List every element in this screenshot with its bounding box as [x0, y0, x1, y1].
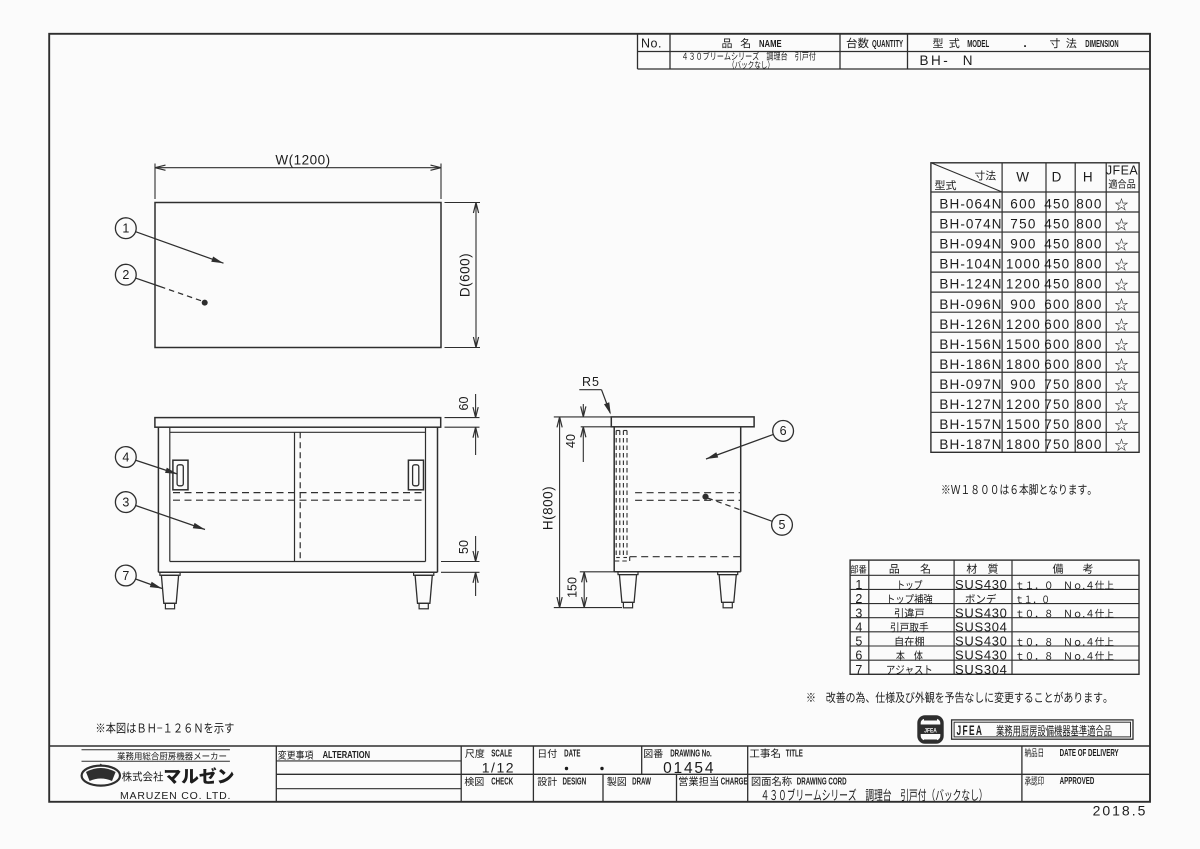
svg-text:40: 40 — [564, 434, 578, 448]
svg-text:5: 5 — [855, 635, 862, 649]
svg-text:D(600): D(600) — [458, 253, 473, 297]
svg-text:450: 450 — [1044, 217, 1070, 232]
svg-text:H: H — [1083, 170, 1093, 185]
svg-text:450: 450 — [1044, 237, 1070, 252]
svg-text:BH-156N: BH-156N — [939, 337, 1002, 352]
svg-text:JFEA: JFEA — [924, 728, 937, 735]
svg-text:1200: 1200 — [1006, 317, 1041, 332]
svg-text:600: 600 — [1044, 337, 1070, 352]
svg-text:SUS430: SUS430 — [955, 577, 1008, 592]
svg-text:BH-064N: BH-064N — [939, 197, 1002, 212]
svg-text:600: 600 — [1044, 317, 1070, 332]
svg-text:DATE: DATE — [564, 747, 581, 759]
svg-text:450: 450 — [1044, 277, 1070, 292]
svg-text:800: 800 — [1076, 297, 1102, 312]
svg-text:BH-104N: BH-104N — [939, 257, 1002, 272]
svg-text:H(800): H(800) — [541, 486, 556, 530]
svg-text:7: 7 — [855, 663, 862, 677]
svg-text:1500: 1500 — [1006, 417, 1041, 432]
svg-text:5: 5 — [779, 518, 786, 532]
svg-text:N: N — [963, 53, 973, 68]
svg-text:D: D — [1052, 170, 1062, 185]
svg-text:BH-186N: BH-186N — [939, 357, 1002, 372]
svg-text:800: 800 — [1076, 237, 1102, 252]
svg-text:BH-187N: BH-187N — [939, 437, 1002, 452]
svg-text:1: 1 — [855, 578, 862, 592]
svg-text:BH-096N: BH-096N — [939, 297, 1002, 312]
svg-text:6: 6 — [855, 649, 862, 663]
svg-text:800: 800 — [1076, 337, 1102, 352]
svg-text:60: 60 — [457, 397, 471, 411]
svg-text:4: 4 — [855, 620, 862, 634]
svg-text:DRAWING CORD: DRAWING CORD — [797, 775, 847, 787]
svg-text:600: 600 — [1044, 357, 1070, 372]
svg-text:3: 3 — [122, 495, 129, 509]
svg-text:R5: R5 — [582, 375, 600, 389]
svg-text:1/12: 1/12 — [482, 760, 515, 776]
svg-text:800: 800 — [1076, 317, 1102, 332]
svg-text:7: 7 — [122, 569, 129, 583]
svg-text:DRAW: DRAW — [632, 775, 651, 787]
svg-text:SUS430: SUS430 — [955, 605, 1008, 620]
svg-text:750: 750 — [1044, 397, 1070, 412]
svg-text:600: 600 — [1044, 297, 1070, 312]
svg-text:800: 800 — [1076, 277, 1102, 292]
svg-text:BH-157N: BH-157N — [939, 417, 1002, 432]
svg-text:2: 2 — [855, 592, 862, 606]
svg-text:50: 50 — [457, 540, 471, 554]
svg-text:TITLE: TITLE — [786, 747, 804, 759]
svg-text:800: 800 — [1076, 417, 1102, 432]
svg-text:450: 450 — [1044, 257, 1070, 272]
svg-text:JFEA: JFEA — [1106, 164, 1138, 178]
svg-text:APPROVED: APPROVED — [1060, 774, 1095, 786]
svg-text:900: 900 — [1010, 377, 1036, 392]
svg-text:2018.5: 2018.5 — [1093, 802, 1148, 818]
svg-text:6: 6 — [780, 424, 787, 438]
svg-text:SUS430: SUS430 — [955, 634, 1008, 649]
svg-text:1: 1 — [122, 222, 129, 236]
svg-text:750: 750 — [1010, 217, 1036, 232]
svg-text:ALTERATION: ALTERATION — [323, 749, 370, 760]
svg-text:BH-: BH- — [920, 53, 951, 68]
svg-text:.: . — [1023, 36, 1026, 50]
svg-text:QUANTITY: QUANTITY — [872, 37, 903, 49]
svg-text:MODEL: MODEL — [967, 37, 989, 49]
svg-text:BH-127N: BH-127N — [939, 397, 1002, 412]
svg-text:1200: 1200 — [1006, 277, 1041, 292]
svg-text:SUS304: SUS304 — [955, 619, 1008, 634]
svg-text:CHARGE: CHARGE — [721, 775, 748, 787]
svg-text:CHECK: CHECK — [491, 775, 513, 787]
svg-text:800: 800 — [1076, 357, 1102, 372]
svg-text:1200: 1200 — [1006, 397, 1041, 412]
svg-text:1800: 1800 — [1006, 437, 1041, 452]
svg-text:800: 800 — [1076, 437, 1102, 452]
svg-text:No.: No. — [641, 37, 662, 51]
svg-text:750: 750 — [1044, 377, 1070, 392]
svg-text:01454: 01454 — [663, 760, 715, 777]
svg-text:BH-097N: BH-097N — [939, 377, 1002, 392]
svg-text:NAME: NAME — [759, 38, 782, 49]
svg-text:150: 150 — [566, 577, 580, 598]
svg-text:800: 800 — [1076, 217, 1102, 232]
svg-text:450: 450 — [1044, 197, 1070, 212]
svg-text:MARUZEN CO. LTD.: MARUZEN CO. LTD. — [120, 790, 231, 802]
svg-text:W(1200): W(1200) — [275, 153, 330, 168]
svg-text:1800: 1800 — [1006, 357, 1041, 372]
svg-text:600: 600 — [1010, 197, 1036, 212]
svg-text:750: 750 — [1044, 417, 1070, 432]
svg-text:DATE OF DELIVERY: DATE OF DELIVERY — [1060, 746, 1119, 758]
svg-text:DESIGN: DESIGN — [563, 775, 587, 787]
svg-text:900: 900 — [1010, 237, 1036, 252]
svg-text:800: 800 — [1076, 197, 1102, 212]
svg-text:2: 2 — [122, 268, 129, 282]
svg-text:800: 800 — [1076, 257, 1102, 272]
svg-text:BH-124N: BH-124N — [939, 277, 1002, 292]
svg-text:1500: 1500 — [1006, 337, 1041, 352]
svg-text:SUS430: SUS430 — [955, 648, 1008, 663]
svg-text:BH-074N: BH-074N — [939, 217, 1002, 232]
svg-text:SUS304: SUS304 — [955, 662, 1008, 677]
svg-text:DRAWING No.: DRAWING No. — [670, 747, 712, 759]
svg-text:JFEA: JFEA — [957, 724, 984, 738]
svg-text:BH-126N: BH-126N — [939, 317, 1002, 332]
svg-text:DIMENSION: DIMENSION — [1085, 37, 1118, 49]
svg-text:1000: 1000 — [1006, 257, 1041, 272]
svg-text:BH-094N: BH-094N — [939, 237, 1002, 252]
svg-text:800: 800 — [1076, 397, 1102, 412]
svg-text:900: 900 — [1010, 297, 1036, 312]
svg-text:3: 3 — [855, 606, 862, 620]
svg-text:750: 750 — [1044, 437, 1070, 452]
svg-text:W: W — [1016, 170, 1029, 185]
svg-text:SCALE: SCALE — [491, 747, 512, 759]
svg-text:4: 4 — [122, 450, 129, 464]
svg-text:800: 800 — [1076, 377, 1102, 392]
